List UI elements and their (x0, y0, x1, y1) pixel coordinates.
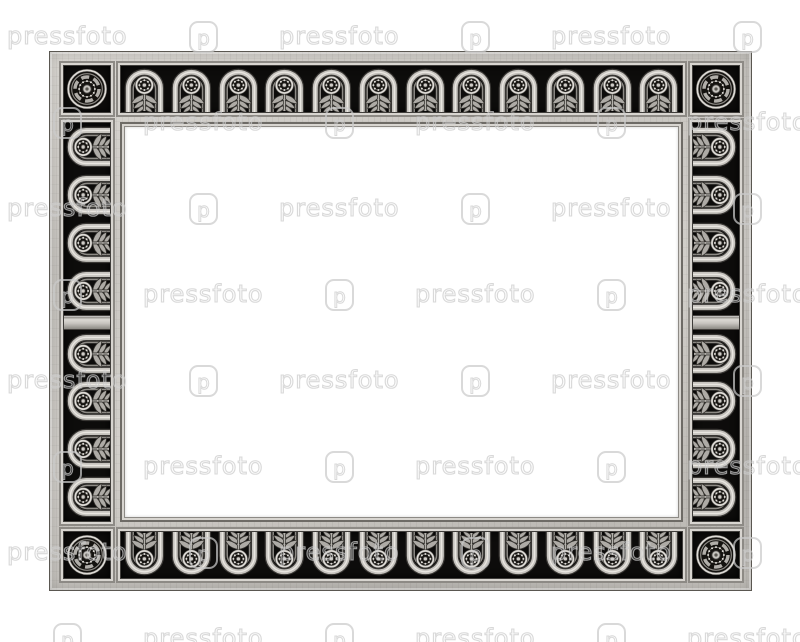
flower-niche-ornament (589, 66, 636, 112)
flower-niche-ornament (542, 66, 589, 112)
pressfoto-logo-letter: p (333, 630, 346, 642)
flower-niche-ornament (402, 66, 449, 112)
flower-niche-ornament (261, 66, 308, 112)
flower-niche-ornament (495, 66, 542, 112)
flower-niche-ornament (64, 377, 110, 425)
frame-seam-divider (693, 315, 739, 330)
frame-seam-divider (64, 315, 110, 330)
pressfoto-logo-letter: p (197, 28, 210, 48)
flower-niche-ornament (495, 532, 542, 578)
flower-niche-ornament (64, 171, 110, 219)
flower-niche-ornament (355, 66, 402, 112)
flower-niche-ornament (308, 66, 355, 112)
flower-niche-ornament (542, 532, 589, 578)
flower-niche-ornament (589, 532, 636, 578)
flower-niche-ornament (635, 66, 682, 112)
picture-frame (49, 51, 752, 591)
frame-corner-rosette-bottom-left (63, 531, 111, 579)
flower-niche-ornament (64, 473, 110, 521)
flower-niche-ornament (168, 532, 215, 578)
flower-niche-ornament (64, 330, 110, 378)
flower-niche-ornament (402, 532, 449, 578)
pressfoto-logo-icon: p (53, 623, 82, 642)
flower-niche-ornament (693, 377, 739, 425)
watermark-text: pressfoto (687, 626, 800, 642)
frame-right-ornament-strip (692, 122, 740, 522)
flower-niche-ornament (121, 66, 168, 112)
flower-niche-ornament (355, 532, 402, 578)
flower-niche-ornament (64, 267, 110, 315)
flower-niche-ornament (693, 425, 739, 473)
flower-niche-ornament (261, 532, 308, 578)
rosette-medallion-ornament (693, 532, 739, 578)
flower-niche-ornament (121, 532, 168, 578)
flower-niche-ornament (693, 171, 739, 219)
pressfoto-logo-letter: p (605, 630, 618, 642)
flower-niche-ornament (448, 532, 495, 578)
flower-niche-ornament (693, 473, 739, 521)
flower-niche-ornament (693, 330, 739, 378)
watermark-text: pressfoto (551, 24, 672, 48)
frame-corner-rosette-top-right (692, 65, 740, 113)
flower-niche-ornament (448, 66, 495, 112)
watermark-text: pressfoto (143, 626, 264, 642)
flower-niche-ornament (64, 219, 110, 267)
frame-bottom-ornament-strip (120, 531, 683, 579)
frame-opening (125, 127, 678, 517)
frame-left-ornament-strip (63, 122, 111, 522)
rosette-medallion-ornament (693, 66, 739, 112)
frame-corner-rosette-top-left (63, 65, 111, 113)
rosette-medallion-ornament (64, 66, 110, 112)
flower-niche-ornament (693, 123, 739, 171)
flower-niche-ornament (693, 267, 739, 315)
pressfoto-logo-icon: p (733, 21, 762, 53)
pressfoto-logo-icon: p (189, 21, 218, 53)
pressfoto-logo-letter: p (61, 630, 74, 642)
flower-niche-ornament (693, 219, 739, 267)
flower-niche-ornament (635, 532, 682, 578)
stock-photo-canvas: pressfotoppressfotoppressfotoppressfotop… (0, 0, 800, 642)
flower-niche-ornament (308, 532, 355, 578)
frame-corner-rosette-bottom-right (692, 531, 740, 579)
watermark-text: pressfoto (7, 24, 128, 48)
pressfoto-logo-letter: p (741, 28, 754, 48)
watermark-text: pressfoto (415, 626, 536, 642)
flower-niche-ornament (168, 66, 215, 112)
rosette-medallion-ornament (64, 532, 110, 578)
pressfoto-logo-icon: p (461, 21, 490, 53)
flower-niche-ornament (215, 532, 262, 578)
pressfoto-logo-letter: p (469, 28, 482, 48)
flower-niche-ornament (64, 425, 110, 473)
flower-niche-ornament (215, 66, 262, 112)
pressfoto-logo-icon: p (597, 623, 626, 642)
flower-niche-ornament (64, 123, 110, 171)
watermark-text: pressfoto (279, 24, 400, 48)
pressfoto-logo-icon: p (325, 623, 354, 642)
frame-top-ornament-strip (120, 65, 683, 113)
